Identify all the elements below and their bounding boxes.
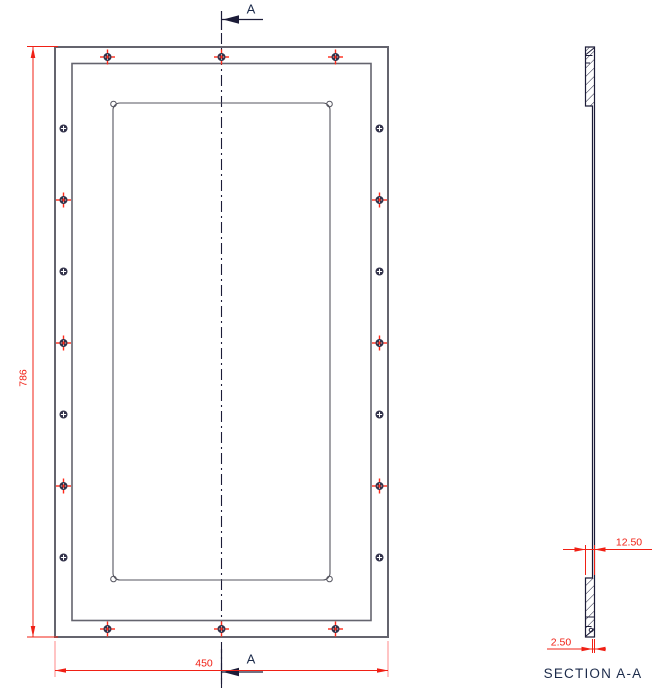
hole-with-centermark xyxy=(372,479,387,494)
hole xyxy=(376,554,384,562)
hole-with-centermark xyxy=(56,336,71,351)
section-cut-arrow-bottom: A xyxy=(222,649,264,684)
hole-with-centermark xyxy=(214,622,229,637)
hole-with-centermark xyxy=(56,479,71,494)
section-profile-outline xyxy=(586,47,595,637)
arrowhead-right-icon xyxy=(582,647,593,651)
arrowhead-left-icon xyxy=(223,15,239,23)
hole xyxy=(376,125,384,133)
hole-with-centermark xyxy=(372,193,387,208)
hole-with-centermark xyxy=(328,50,343,65)
front-view xyxy=(55,33,388,688)
hole-with-centermark xyxy=(214,50,229,65)
height-dimension: 786 xyxy=(18,47,59,638)
hole-with-centermark xyxy=(100,50,115,65)
hole-with-centermark xyxy=(56,193,71,208)
hole xyxy=(60,411,68,419)
hole xyxy=(60,554,68,562)
arrowhead-left-icon xyxy=(595,647,606,651)
hole xyxy=(60,125,68,133)
thickness-dimension-value: 2.50 xyxy=(551,637,572,649)
arrowhead-left-icon xyxy=(595,547,606,551)
section-view-title: SECTION A-A xyxy=(544,666,643,681)
thickness-dimension: 2.50 xyxy=(547,637,606,654)
hole xyxy=(376,411,384,419)
arrowhead-left-icon xyxy=(55,668,66,673)
arrowhead-down-icon xyxy=(31,626,36,637)
hole xyxy=(60,268,68,276)
drawing-canvas: A A 786 450 xyxy=(0,0,670,700)
arrowhead-left-icon xyxy=(223,668,239,676)
section-cut-arrow-top: A xyxy=(222,2,264,31)
width-dimension-value: 450 xyxy=(195,658,213,670)
arrowhead-right-icon xyxy=(575,547,586,551)
arrowhead-up-icon xyxy=(31,47,36,58)
depth-dimension: 12.50 xyxy=(563,537,652,576)
height-dimension-value: 786 xyxy=(18,369,30,387)
hole-with-centermark xyxy=(328,622,343,637)
hole xyxy=(376,268,384,276)
hole-with-centermark xyxy=(372,336,387,351)
section-label-top: A xyxy=(247,2,256,17)
section-label-bottom: A xyxy=(247,652,256,667)
arrowhead-right-icon xyxy=(377,668,388,673)
depth-dimension-value: 12.50 xyxy=(616,537,642,549)
technical-drawing: A A 786 450 xyxy=(0,0,670,700)
hole-with-centermark xyxy=(100,622,115,637)
section-view xyxy=(586,47,595,637)
